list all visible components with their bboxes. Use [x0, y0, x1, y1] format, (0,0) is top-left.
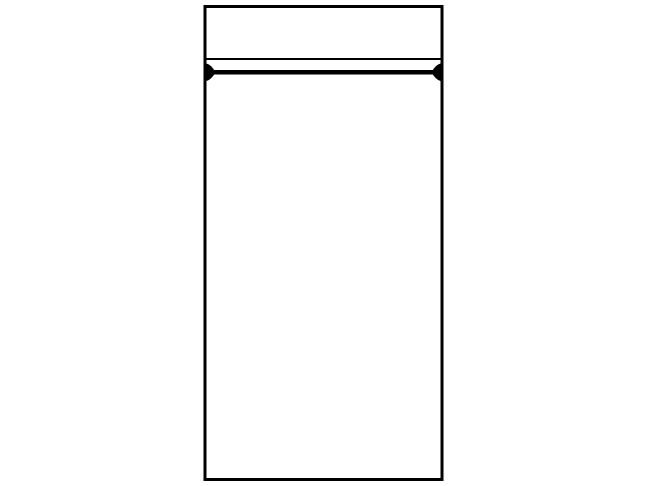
- drawing-canvas: [0, 0, 648, 486]
- bag-outline: [205, 7, 442, 480]
- ziplock-bag-drawing: [0, 0, 648, 486]
